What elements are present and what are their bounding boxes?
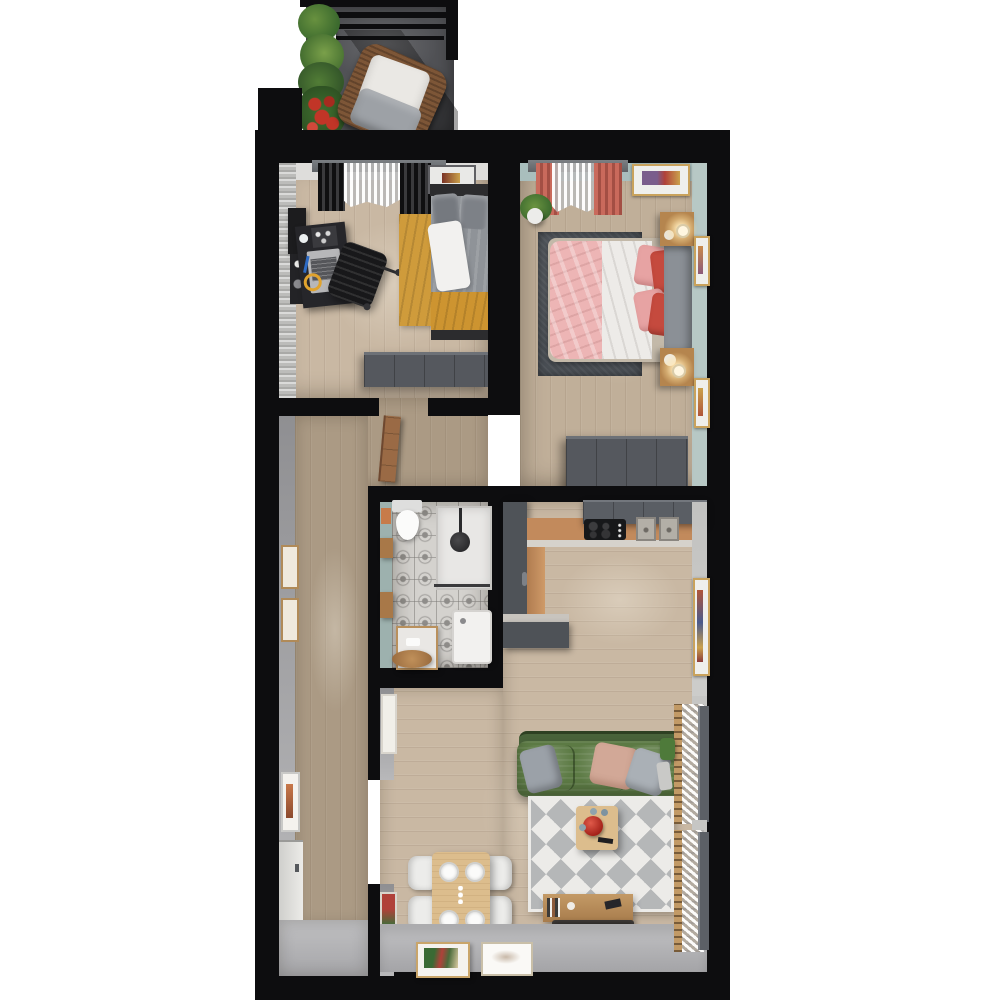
- wall-between-bedrooms: [488, 163, 520, 415]
- round-wood-tray: [392, 650, 432, 668]
- bathroom-shelf-1: [380, 538, 393, 558]
- master-right-wall: [692, 163, 707, 486]
- bed1-footboard: [431, 330, 488, 340]
- hallway-frame-orange-art: [286, 784, 293, 818]
- hallway-floor: [295, 416, 368, 926]
- leaning-frame-green-art: [424, 948, 458, 968]
- window-1: [674, 704, 707, 824]
- master-right-frame-1: [694, 236, 710, 286]
- bathroom-top-wall: [368, 486, 503, 502]
- master-curtain-right-coral: [594, 163, 622, 215]
- office-curtain-sheer: [344, 163, 401, 207]
- double-bed: [548, 238, 694, 362]
- lamp-bottom: [672, 364, 686, 378]
- office-wardrobe: [364, 352, 488, 387]
- master-right-art-1: [698, 246, 703, 274]
- bed2-pink-duvet: [550, 241, 604, 359]
- wall-stub-upper: [368, 688, 380, 780]
- coffee-table-cup-2: [601, 809, 608, 816]
- floorplan-render: [0, 0, 1000, 1000]
- dining-chair-1: [408, 856, 434, 890]
- kitchen-counter-edge: [527, 540, 700, 547]
- balcony-railing-bar-4: [322, 36, 444, 40]
- office-curtain-right-black: [400, 163, 431, 214]
- coffee-table-kettle: [583, 816, 603, 836]
- bed1-pillow-2: [460, 194, 488, 230]
- kitchen-wall-art: [697, 590, 703, 662]
- coffee-table: [576, 806, 618, 850]
- master-right-art-2: [698, 388, 703, 416]
- wall-top: [255, 130, 730, 163]
- window-1-sill: [698, 706, 709, 822]
- wall-stub-lower: [368, 884, 380, 976]
- master-wardrobe: [566, 436, 688, 491]
- bed2-headboard: [664, 236, 692, 362]
- wall-left: [255, 130, 279, 986]
- front-door-handle: [295, 864, 299, 872]
- sink-basin-1: [636, 517, 656, 541]
- tv-console: [543, 894, 633, 922]
- hallway-frame-2: [281, 598, 299, 642]
- cooktop: [584, 519, 626, 540]
- washing-machine: [452, 610, 492, 664]
- leaning-frame-sketch: [481, 942, 533, 976]
- washer-dial: [460, 618, 466, 624]
- balcony: [298, 0, 460, 140]
- office-bottom-wall-right: [428, 398, 488, 416]
- bathroom-towel-orange: [381, 508, 391, 524]
- lamp-top: [676, 224, 690, 238]
- table-candles: [458, 886, 463, 904]
- side-table-soap: [406, 638, 420, 646]
- bathroom-left-wall-face: [380, 502, 392, 668]
- kitchen-wall-frame: [693, 578, 710, 676]
- window-2: [674, 830, 707, 952]
- master-plant-pot: [527, 208, 543, 224]
- sink-basin-2: [659, 517, 679, 541]
- single-bed: [430, 184, 488, 340]
- plate-1: [439, 862, 459, 882]
- kitchen-tall-cabinet: [503, 502, 527, 618]
- bathroom-left-wall: [368, 486, 380, 688]
- front-door: [279, 840, 303, 932]
- hallway-frame-orange: [281, 772, 300, 832]
- wall-right: [707, 130, 730, 986]
- balcony-railing-right: [446, 0, 458, 60]
- desk-mug: [299, 234, 309, 244]
- master-wall-art-frame: [632, 164, 690, 196]
- console-cup: [567, 902, 575, 910]
- leaning-frame-sketch-art: [491, 950, 521, 964]
- entry-gray-floor: [279, 920, 368, 976]
- window-2-sill: [698, 832, 709, 950]
- bed1-mustard-blanket: [431, 292, 488, 332]
- plate-2: [465, 862, 485, 882]
- console-deco-black: [604, 898, 621, 909]
- coffee-table-cup-1: [590, 808, 597, 815]
- bathroom-shelf-2: [380, 592, 393, 618]
- office-curtain-left-black: [318, 163, 345, 211]
- office-bottom-wall-left: [279, 398, 379, 416]
- coffee-table-remote: [598, 837, 614, 844]
- console-books: [547, 898, 560, 917]
- leaning-frame-green: [416, 942, 470, 978]
- desk-pegboard: [311, 226, 338, 249]
- master-right-frame-2: [694, 378, 710, 428]
- bathroom-bottom-wall: [368, 668, 503, 688]
- kitchen-return-counter: [503, 622, 569, 648]
- coffee-table-cup-3: [579, 824, 586, 831]
- shower-divider-line: [434, 584, 490, 587]
- shower-head: [450, 532, 470, 552]
- stub-upper-frame: [381, 694, 397, 754]
- office-wall-art: [442, 173, 460, 183]
- kitchen-sink: [636, 517, 680, 541]
- master-wall-art: [642, 171, 680, 185]
- watering-can: [660, 738, 675, 760]
- hallway-frame-1: [281, 545, 299, 589]
- wall-bottom: [255, 972, 730, 1000]
